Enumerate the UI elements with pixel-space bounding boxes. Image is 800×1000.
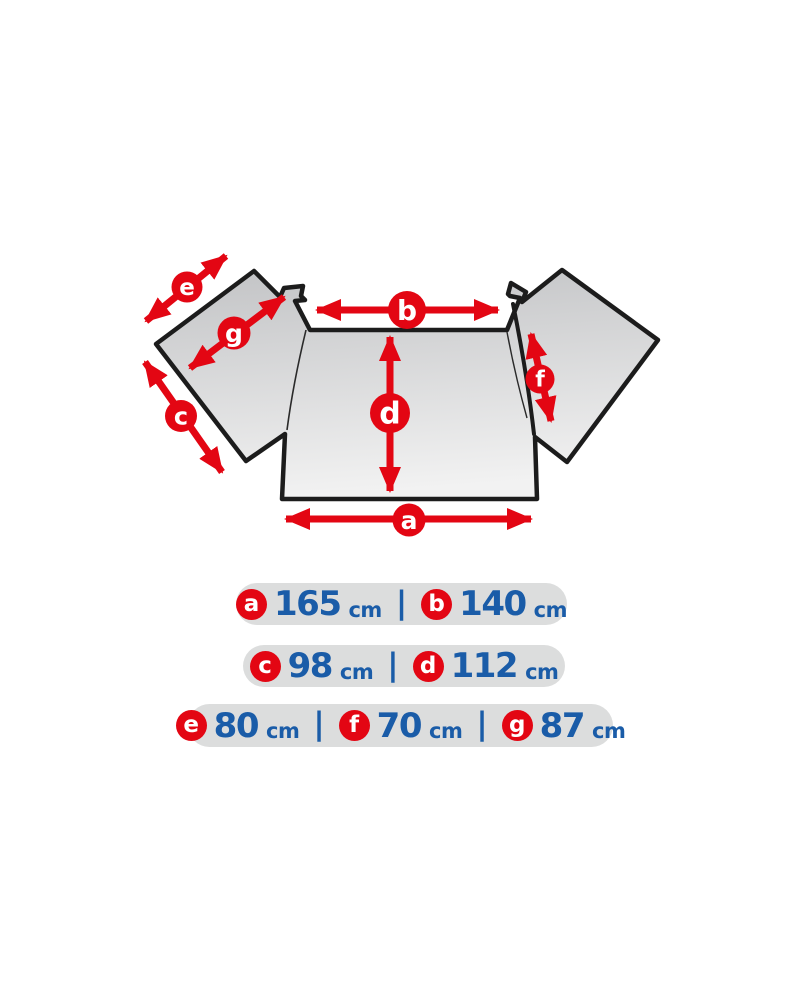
dimension-marker-d: d: [370, 393, 410, 433]
dim-value-a: 165: [274, 587, 340, 621]
dim-badge-d: d: [413, 651, 444, 682]
dimension-marker-e: e: [172, 272, 203, 303]
dim-unit-a: cm: [348, 600, 381, 621]
marker-letter-f: f: [535, 368, 545, 393]
separator-bar: |: [476, 709, 487, 740]
dim-value-d: 112: [451, 649, 517, 683]
marker-letter-b: b: [397, 294, 417, 327]
separator-bar: |: [396, 588, 407, 619]
dimension-marker-b: b: [388, 291, 426, 329]
dimension-marker-f: f: [526, 365, 555, 394]
measurement-row-cd: c 98 cm | d 112 cm: [243, 645, 565, 687]
separator-bar: |: [313, 709, 324, 740]
dim-value-c: 98: [288, 649, 332, 683]
marker-letter-g: g: [225, 319, 243, 348]
dimension-marker-c: c: [165, 400, 197, 432]
dim-badge-b: b: [421, 589, 452, 620]
separator-bar: |: [387, 650, 398, 681]
dim-badge-e: e: [176, 710, 207, 741]
dim-badge-c: c: [250, 651, 281, 682]
dim-value-g: 87: [540, 709, 584, 743]
marker-letter-d: d: [379, 397, 400, 432]
dimension-marker-g: g: [218, 317, 251, 350]
dim-badge-f: f: [339, 710, 370, 741]
marker-letter-a: a: [401, 506, 418, 535]
dim-value-e: 80: [214, 709, 258, 743]
dim-badge-a: a: [236, 589, 267, 620]
dim-unit-f: cm: [429, 721, 462, 742]
marker-letter-e: e: [179, 275, 195, 301]
measurement-row-efg: e 80 cm | f 70 cm | g 87 cm: [188, 704, 613, 747]
dim-value-f: 70: [377, 709, 421, 743]
dim-unit-c: cm: [340, 662, 373, 683]
dimension-diagram: e g c b d f a: [0, 0, 800, 560]
marker-letter-c: c: [174, 402, 188, 430]
dim-value-b: 140: [459, 587, 525, 621]
dim-badge-g: g: [502, 710, 533, 741]
measurement-row-ab: a 165 cm | b 140 cm: [236, 583, 567, 625]
dim-unit-b: cm: [534, 600, 567, 621]
product-dimension-figure: e g c b d f a a 165 cm | b: [0, 0, 800, 1000]
dim-unit-d: cm: [525, 662, 558, 683]
dim-unit-g: cm: [592, 721, 625, 742]
dimension-marker-a: a: [393, 504, 426, 537]
dim-unit-e: cm: [266, 721, 299, 742]
